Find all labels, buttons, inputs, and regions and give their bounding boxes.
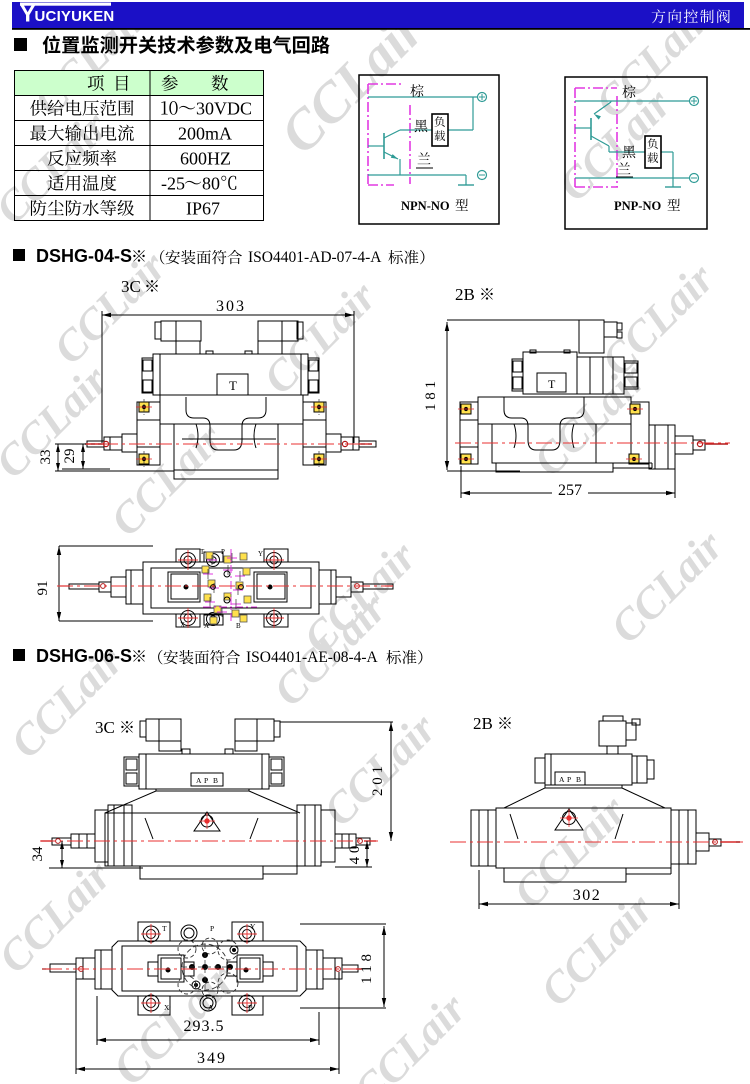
svg-text:A: A [208, 1003, 214, 1012]
svg-text:CCLair: CCLair [254, 271, 386, 403]
svg-text:A: A [559, 775, 565, 784]
svg-text:29: 29 [62, 449, 78, 464]
svg-text:P: P [221, 548, 225, 556]
svg-text:ISO4401-AE-08-4-A: ISO4401-AE-08-4-A [246, 649, 379, 666]
svg-text:P: P [567, 775, 571, 784]
svg-text:91: 91 [35, 581, 51, 596]
svg-text:3C: 3C [95, 718, 115, 737]
svg-text:A: A [196, 776, 202, 785]
svg-text:CCLair: CCLair [0, 355, 118, 487]
svg-text:IP67: IP67 [186, 199, 220, 219]
svg-text:3C: 3C [121, 277, 141, 296]
svg-text:B: B [576, 775, 581, 784]
svg-text:Y: Y [250, 922, 256, 931]
svg-text:B: B [248, 1003, 253, 1012]
svg-text:34: 34 [30, 846, 46, 862]
svg-text:349: 349 [197, 1050, 227, 1067]
svg-text:T: T [548, 377, 556, 391]
svg-text:4 0: 4 0 [347, 846, 363, 865]
svg-text:CCLair: CCLair [601, 520, 733, 652]
svg-text:80: 80 [202, 174, 220, 194]
svg-text:T: T [229, 378, 237, 393]
svg-text:2B: 2B [455, 285, 475, 304]
svg-text:DSHG-06-S: DSHG-06-S [36, 646, 132, 666]
svg-text:DSHG-04-S: DSHG-04-S [36, 246, 132, 266]
svg-text:293.5: 293.5 [184, 1018, 225, 1035]
svg-text:2B: 2B [473, 714, 493, 733]
svg-text:30VDC: 30VDC [196, 99, 252, 119]
svg-text:X: X [180, 621, 185, 629]
svg-text:Y: Y [20, 1, 35, 27]
svg-text:B: B [213, 776, 218, 785]
svg-text:NPN-NO: NPN-NO [401, 199, 450, 213]
svg-text:P: P [210, 924, 214, 933]
svg-text:ISO4401-AD-07-4-A: ISO4401-AD-07-4-A [248, 249, 382, 266]
svg-text:1 8 1: 1 8 1 [423, 381, 439, 411]
svg-text:1 1 8: 1 1 8 [359, 954, 375, 984]
svg-text:200mA: 200mA [178, 124, 232, 144]
svg-text:T: T [200, 548, 205, 556]
svg-text:-25: -25 [161, 174, 185, 194]
svg-text:PNP-NO: PNP-NO [614, 199, 661, 213]
svg-text:T: T [162, 924, 167, 933]
svg-text:33: 33 [38, 450, 54, 465]
svg-text:B: B [236, 622, 241, 630]
svg-text:UCIYUKEN: UCIYUKEN [35, 8, 115, 25]
svg-text:X: X [164, 1003, 170, 1012]
svg-text:CCLair: CCLair [0, 850, 121, 982]
svg-text:302: 302 [573, 887, 602, 904]
svg-text:Y: Y [258, 550, 263, 558]
svg-text:303: 303 [216, 298, 246, 315]
svg-text:CCLair: CCLair [344, 983, 476, 1084]
svg-text:P: P [204, 776, 208, 785]
svg-text:2 0 1: 2 0 1 [370, 766, 386, 796]
svg-text:600HZ: 600HZ [180, 149, 231, 169]
svg-text:A: A [204, 622, 209, 630]
svg-text:257: 257 [558, 482, 582, 499]
